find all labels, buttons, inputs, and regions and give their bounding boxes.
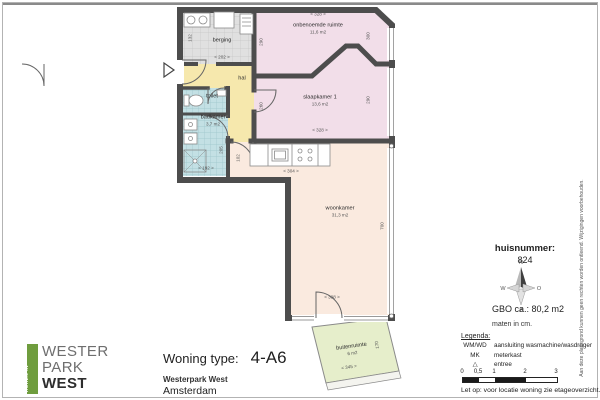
disclaimer-text: Aan deze plattegrond kunnen geen rechten… (579, 164, 585, 392)
compass-o-label: O (537, 286, 542, 292)
westerpark-west-logo: HUREN IN WESTER PARK WEST (27, 344, 109, 394)
toilet-name: toilet (206, 94, 218, 101)
woonkamer-area: 31,3 m2 (326, 213, 355, 219)
scalebar-label-3: 3 (554, 369, 557, 375)
label-hal: hal (238, 76, 245, 83)
berging-name: berging (213, 38, 232, 45)
label-berging: berging (213, 38, 232, 45)
slaapkamer-name: slaapkamer 1 (303, 95, 337, 102)
label-badkamer: badkamer 3,7 m2 (201, 115, 226, 128)
dim-onbenoemde-left: 290 (259, 38, 264, 46)
onbenoemde-area: 11,6 m2 (293, 30, 343, 36)
badkamer-name: badkamer (201, 115, 226, 122)
berging-cabinet (214, 12, 234, 28)
scalebar-label-0: 0 (460, 369, 463, 375)
legend-key-entree-icon: △ (461, 361, 489, 368)
kitchen-sink-basin (275, 151, 286, 159)
room-woonkamer (228, 142, 392, 318)
cooktop-burner2 (308, 149, 312, 153)
scale-seg-4 (526, 378, 557, 382)
label-onbenoemde: onbenoemde ruimte 11,6 m2 (293, 23, 343, 36)
dim-buitenruimte-side: 170 (374, 341, 380, 349)
dim-slaapkamer-bottom: < 328 > (312, 128, 328, 133)
project-name: Westerpark West (163, 375, 287, 384)
dim-berging-side: 132 (188, 34, 193, 42)
dim-badkamer-side: 205 (219, 146, 224, 154)
hal-name: hal (238, 76, 245, 83)
meterkast-icon (240, 14, 253, 34)
compass-east (523, 284, 535, 292)
compass-west (507, 284, 519, 292)
floorplan-sheet: N O Z W berging onbenoemde ruimte 11,6 m… (0, 0, 600, 400)
berging-door (22, 64, 44, 86)
window-woonkamer (387, 148, 396, 314)
scalebar-label-05: 0,5 (474, 369, 482, 375)
logo-line1: WESTER (42, 344, 109, 360)
scale-seg-1 (463, 378, 479, 382)
project-city: Amsterdam (163, 385, 287, 397)
legend-key-wmwd: WM/WD (461, 342, 489, 349)
logo-vertical-text: HUREN IN (24, 365, 29, 392)
toilet-bowl-icon (189, 95, 203, 106)
floor-plan-drawing: N O Z W (0, 0, 600, 400)
woning-type-value: 4-A6 (251, 348, 287, 368)
cooktop-burner3 (298, 157, 302, 161)
legend-title: Legenda: (461, 333, 490, 340)
gbo-area: GBO ca.: 80,2 m2 (492, 304, 564, 314)
legend-value-mk: meterkast (494, 352, 522, 359)
huisnummer-label: huisnummer: (470, 243, 580, 254)
onbenoemde-name: onbenoemde ruimte (293, 23, 343, 30)
sink2-drain (189, 137, 193, 141)
label-woonkamer: woonkamer 31,3 m2 (326, 206, 355, 219)
dim-kitchen-width: < 304 > (283, 169, 299, 174)
slaapkamer-area: 13,6 m2 (303, 102, 337, 108)
title-block: Woning type: 4-A6 Westerpark West Amster… (163, 348, 287, 397)
dim-kitchen-side: 102 (236, 154, 241, 162)
dryer-drum-icon (199, 16, 207, 24)
toilet-tank-icon (184, 95, 189, 106)
logo-green-bar: HUREN IN (27, 344, 38, 394)
dim-woonkamer-side: 700 (380, 222, 385, 230)
woning-type-label: Woning type: (163, 351, 239, 366)
shower-drain (193, 159, 197, 163)
legend-value-entree: entree (494, 361, 512, 368)
scalebar-label-2: 2 (523, 369, 526, 375)
scalebar-label-1: 1 (492, 369, 495, 375)
entree-triangle-icon (164, 63, 174, 77)
label-toilet: toilet (206, 94, 218, 101)
scale-bar (462, 377, 558, 383)
toilet-sink-icon (217, 90, 226, 96)
woning-type-row: Woning type: 4-A6 (163, 348, 287, 368)
scale-seg-2 (479, 378, 495, 382)
legend-value-wmwd: aansluiting wasmachine/wasdroger (494, 342, 592, 349)
cooktop-burner4 (308, 157, 312, 161)
dim-slaapkamer-left: 260 (259, 102, 264, 110)
huisnummer-value: 824 (470, 255, 580, 265)
washer-drum-icon (187, 16, 195, 24)
logo-line3: WEST (42, 376, 109, 392)
window-slaapkamer (387, 68, 396, 136)
window-joint-top (390, 144, 394, 148)
cooktop-burner1 (298, 149, 302, 153)
scale-seg-3 (495, 378, 526, 382)
compass-w-label: W (500, 286, 506, 292)
logo-line2: PARK (42, 360, 109, 376)
dim-woonkamer-bottom: < 398 > (324, 295, 340, 300)
sink1-drain (189, 123, 193, 127)
dim-berging-width: < 202 > (214, 55, 230, 60)
dim-onbenoemde-right: 300 (366, 32, 371, 40)
units-note: maten in cm. (492, 321, 532, 328)
window-onbenoemde (387, 28, 396, 60)
balcony-opening (314, 314, 344, 322)
badkamer-area: 3,7 m2 (201, 122, 226, 128)
room-fills (182, 8, 401, 390)
label-slaapkamer: slaapkamer 1 13,6 m2 (303, 95, 337, 108)
woonkamer-name: woonkamer (326, 206, 355, 213)
window-joint-bottom (390, 314, 394, 318)
dim-onbenoemde-top: < 328 > (310, 12, 326, 17)
entrance-opening (176, 60, 184, 84)
dim-slaapkamer-right: 290 (366, 96, 371, 104)
legend-key-mk: MK (461, 352, 489, 359)
logo-wordmark: WESTER PARK WEST (42, 344, 109, 394)
dim-badkamer-width: < 192 > (198, 166, 214, 171)
